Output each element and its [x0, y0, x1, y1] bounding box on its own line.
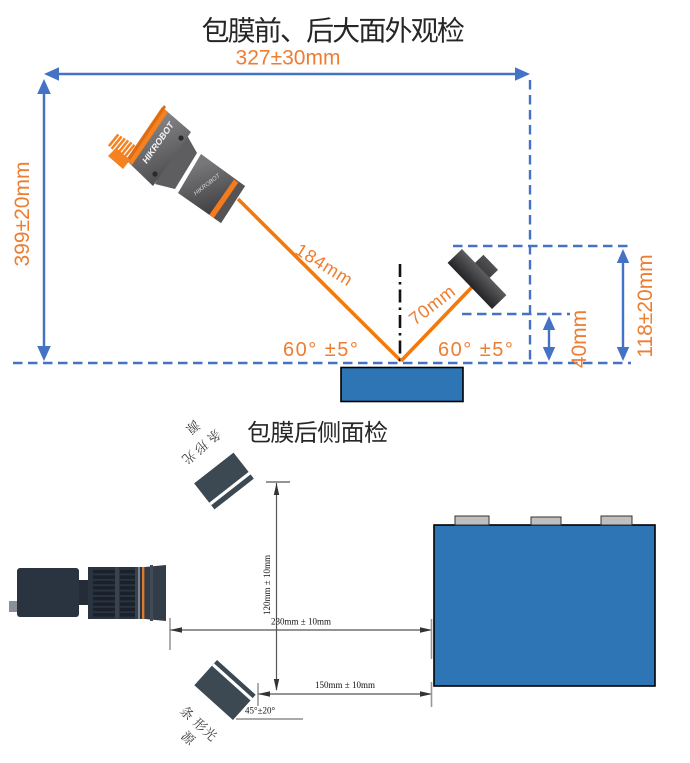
svg-text:150mm ± 10mm: 150mm ± 10mm: [315, 680, 375, 690]
svg-text:45°±20°: 45°±20°: [245, 706, 276, 716]
svg-text:399±20mm: 399±20mm: [11, 162, 34, 267]
svg-text:118±20mm: 118±20mm: [634, 254, 657, 357]
svg-text:120mm ± 10mm: 120mm ± 10mm: [262, 555, 272, 615]
svg-text:230mm ± 10mm: 230mm ± 10mm: [271, 617, 331, 627]
svg-text:60° ±5°: 60° ±5°: [438, 339, 514, 361]
svg-text:60° ±5°: 60° ±5°: [283, 339, 359, 361]
svg-text:327±30mm: 327±30mm: [236, 47, 341, 70]
svg-text:40mm: 40mm: [568, 310, 591, 368]
